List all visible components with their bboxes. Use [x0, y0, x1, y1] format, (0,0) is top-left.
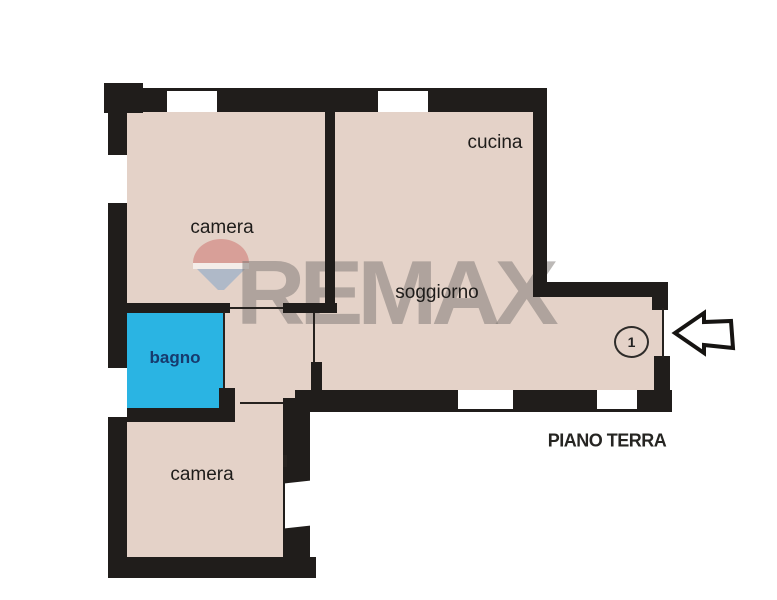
window — [108, 368, 127, 417]
wall — [533, 88, 547, 282]
entrance-number-badge: 1 — [614, 326, 649, 358]
window-outer-line — [458, 409, 513, 412]
wall — [325, 112, 335, 310]
wall — [654, 356, 670, 390]
window-outer-line — [167, 88, 217, 91]
room-label-camera-top: camera — [190, 217, 253, 239]
room-label-camera-bottom: camera — [170, 464, 233, 486]
wall — [108, 557, 316, 578]
entrance-arrow-icon — [669, 305, 739, 359]
door-line — [283, 455, 287, 467]
door-line — [313, 313, 315, 362]
door-line-entrance — [662, 308, 664, 358]
door-line — [230, 307, 283, 309]
room-label-cucina: cucina — [468, 132, 523, 154]
window — [167, 91, 217, 112]
window-outer-line — [597, 409, 637, 412]
wall — [283, 303, 337, 313]
door-line — [240, 402, 283, 404]
wall — [219, 388, 235, 408]
room-label-soggiorno: soggiorno — [395, 282, 478, 304]
entrance-number: 1 — [628, 334, 636, 350]
wall — [108, 408, 235, 422]
window-outer-line — [378, 88, 428, 91]
window — [597, 390, 637, 409]
window — [458, 390, 513, 409]
door-line — [223, 312, 225, 388]
floor-label: PIANO TERRA — [548, 431, 667, 452]
window — [378, 91, 428, 112]
floor-plan: REMAX camera cucina soggiorno bagno came… — [0, 0, 777, 600]
window — [285, 481, 310, 529]
window — [108, 155, 127, 203]
wall — [127, 303, 230, 313]
wall — [652, 282, 668, 310]
wall — [533, 282, 668, 297]
wall — [283, 398, 310, 557]
room-label-bagno: bagno — [150, 348, 201, 368]
wall — [311, 362, 322, 392]
